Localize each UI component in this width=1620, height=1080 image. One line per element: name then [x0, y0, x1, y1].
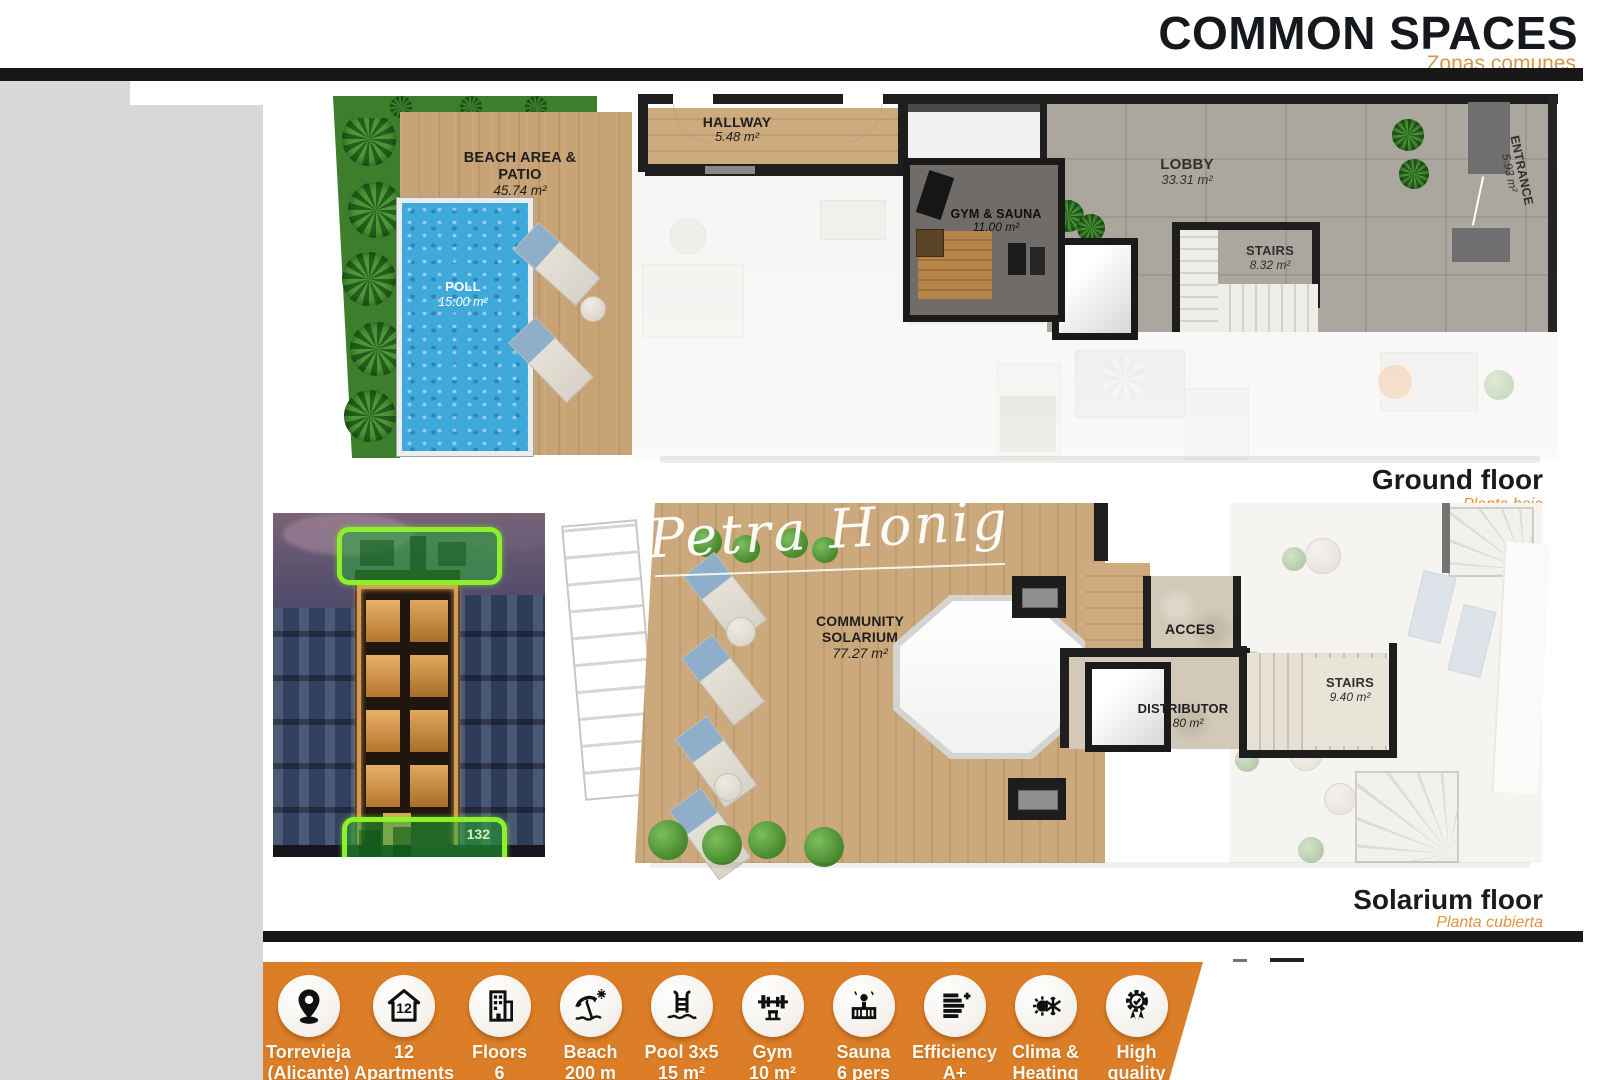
entrance-slab-2	[1452, 228, 1510, 262]
pool-label: POLL 15.00 m²	[400, 280, 526, 309]
beach-area-label: BEACH AREA & PATIO 45.74 m²	[445, 150, 595, 199]
stairs-label: STAIRS 8.32 m²	[1227, 244, 1313, 273]
feature-circle	[651, 975, 713, 1037]
access-wall-left	[1143, 576, 1151, 656]
stairs-wall-top	[1172, 222, 1320, 230]
lobby-area: LOBBY 33.31 m² STAIRS 8.32 m² ENTRANCE 5…	[1047, 96, 1557, 332]
building-photo: 132	[273, 513, 545, 857]
solarium-stairs-wall-left	[1239, 646, 1247, 758]
lit-window	[410, 600, 448, 642]
stair-treads	[1180, 230, 1218, 332]
solarium-caption-es: Planta cubierta	[1436, 914, 1543, 932]
palm-tree	[1399, 159, 1429, 189]
lit-window	[366, 765, 400, 807]
building-icon	[480, 986, 520, 1026]
wall-gray-segment	[705, 166, 755, 174]
feature-label: Pool 3x5 15 m²	[645, 1042, 719, 1080]
gym-sauna-room: GYM & SAUNA 11.00 m²	[903, 158, 1065, 322]
vent-grille	[1018, 790, 1058, 810]
side-table	[726, 617, 756, 647]
hallway-wall-right	[898, 94, 908, 166]
award-icon	[1117, 986, 1157, 1026]
deck-wall-segment	[1094, 503, 1108, 561]
lit-window	[366, 600, 400, 642]
plan-shadow	[660, 456, 1540, 463]
ground-floor-caption: Ground floor	[1372, 464, 1543, 496]
palm-tree	[350, 322, 404, 376]
highlight-shape	[410, 536, 426, 570]
palm-tree	[1392, 119, 1424, 151]
palm-tree	[342, 252, 396, 306]
dash-mark	[1233, 959, 1247, 962]
highlight-ground-floor: 132	[342, 817, 507, 857]
solarium-stairs-label: STAIRS 9.40 m²	[1308, 676, 1392, 705]
features-bar: Torrevieja (Alicante) 12 12 Apartments	[263, 962, 1203, 1080]
side-table	[580, 296, 606, 322]
lit-window	[366, 710, 400, 752]
vent-grille	[1022, 588, 1058, 608]
feature-beach: Beach 200 m	[545, 975, 636, 1080]
gym-machine	[1008, 243, 1026, 275]
sauna-stove	[916, 229, 944, 257]
feature-apartments: 12 12 Apartments	[354, 975, 454, 1080]
feature-pool: Pool 3x5 15 m²	[636, 975, 727, 1080]
header-divider-bar	[0, 68, 1583, 81]
access-floor	[1150, 576, 1240, 653]
feature-label: Sauna 6 pers	[837, 1042, 891, 1080]
feature-label: Torrevieja (Alicante)	[266, 1042, 351, 1080]
shrub	[804, 827, 844, 867]
feature-label: Efficiency A+	[912, 1042, 997, 1080]
led-strip-left	[357, 585, 361, 845]
ground-floor-plan: HALLWAY 5.48 m² LOBBY 33.31 m²	[320, 90, 1565, 462]
footer-divider-bar	[263, 931, 1583, 942]
climate-icon	[1026, 986, 1066, 1026]
feature-circle	[742, 975, 804, 1037]
flyer-page: COMMON SPACES Zonas comunes	[0, 0, 1620, 1080]
door-gap	[673, 94, 713, 104]
lit-window	[366, 655, 400, 697]
plan-shadow-2	[650, 862, 1530, 868]
distributor-label: DISTRIBUTOR 7.80 m²	[1128, 702, 1238, 731]
feature-circle	[924, 975, 986, 1037]
pool-ladder-icon	[662, 986, 702, 1026]
solarium-caption: Solarium floor	[1353, 884, 1543, 916]
vent-box-top	[1012, 576, 1066, 618]
feature-circle	[469, 975, 531, 1037]
feature-label: Gym 10 m²	[749, 1042, 796, 1080]
gym-sauna-label: GYM & SAUNA 11.00 m²	[944, 207, 1048, 235]
solarium-stairs-wall-bottom	[1239, 750, 1397, 758]
hallway-wall-bottom	[645, 164, 907, 176]
feature-label: High quality	[1108, 1042, 1166, 1080]
feature-circle	[833, 975, 895, 1037]
lobby-label: LOBBY 33.31 m²	[1127, 156, 1247, 188]
feature-gym: Gym 10 m²	[727, 975, 818, 1080]
gym-machine-2	[1030, 247, 1045, 275]
led-strip-right	[454, 585, 458, 845]
lit-window	[410, 655, 448, 697]
feature-label: Floors 6	[472, 1042, 527, 1080]
feature-label: Beach 200 m	[564, 1042, 618, 1080]
side-table	[714, 773, 742, 801]
palm-tree	[348, 182, 404, 238]
stairs-wall-left	[1172, 222, 1180, 332]
feature-circle	[1015, 975, 1077, 1037]
svg-text:12: 12	[396, 1001, 412, 1017]
feature-efficiency: Efficiency A+	[909, 975, 1000, 1080]
feature-sauna: Sauna 6 pers	[818, 975, 909, 1080]
access-label: ACCES	[1145, 621, 1235, 637]
led-strip-top	[357, 585, 458, 589]
door-gap-2	[843, 94, 883, 104]
feature-circle: 12	[373, 975, 435, 1037]
lit-window	[410, 710, 448, 752]
highlight-shape	[438, 542, 466, 566]
feature-floors: Floors 6	[454, 975, 545, 1080]
vent-box-bottom	[1008, 778, 1066, 820]
access-wall-right	[1233, 576, 1241, 656]
hallway-label: HALLWAY 5.48 m²	[672, 114, 802, 145]
hallway-wall-left	[638, 94, 648, 172]
feature-location: Torrevieja (Alicante)	[263, 975, 354, 1080]
efficiency-icon	[935, 986, 975, 1026]
feature-label: 12 Apartments	[354, 1042, 454, 1080]
dash-mark-2	[1270, 958, 1304, 962]
location-pin-icon	[289, 986, 329, 1026]
house-12-icon: 12	[384, 986, 424, 1026]
skylight-octagon	[900, 601, 1082, 753]
feature-circle	[560, 975, 622, 1037]
highlight-solarium	[337, 527, 502, 585]
beach-umbrella-icon	[571, 986, 611, 1026]
highlight-shape	[393, 827, 411, 857]
sauna-icon	[844, 986, 884, 1026]
left-gray-panel	[0, 105, 263, 1080]
shrub	[702, 825, 742, 865]
lobby-right-wall	[1548, 96, 1557, 332]
pool	[397, 198, 533, 456]
distributor-wall-left	[1060, 648, 1069, 748]
feature-circle	[1106, 975, 1168, 1037]
highlight-shape	[359, 830, 381, 857]
shrub	[748, 821, 786, 859]
stair-treads-run	[1218, 284, 1318, 332]
lit-window	[410, 765, 448, 807]
access-wood-floor	[1085, 563, 1150, 655]
highlight-shape	[360, 540, 394, 566]
entrance-door-line	[1472, 176, 1484, 225]
feature-label: Clima & Heating	[1012, 1042, 1079, 1080]
solarium-floor-plan: COMMUNITY SOLARIUM 77.27 m² ACCES DISTRI…	[560, 495, 1560, 865]
feature-quality: High quality	[1091, 975, 1182, 1080]
palm-tree	[344, 390, 396, 442]
street-number-badge: 132	[467, 826, 490, 842]
distributor-wall-top	[1060, 648, 1250, 657]
feature-circle	[278, 975, 340, 1037]
feature-climate: Clima & Heating	[1000, 975, 1091, 1080]
palm-tree	[342, 112, 396, 166]
shrub	[648, 820, 688, 860]
barbell-icon	[753, 986, 793, 1026]
left-gray-panel-step	[0, 81, 130, 107]
